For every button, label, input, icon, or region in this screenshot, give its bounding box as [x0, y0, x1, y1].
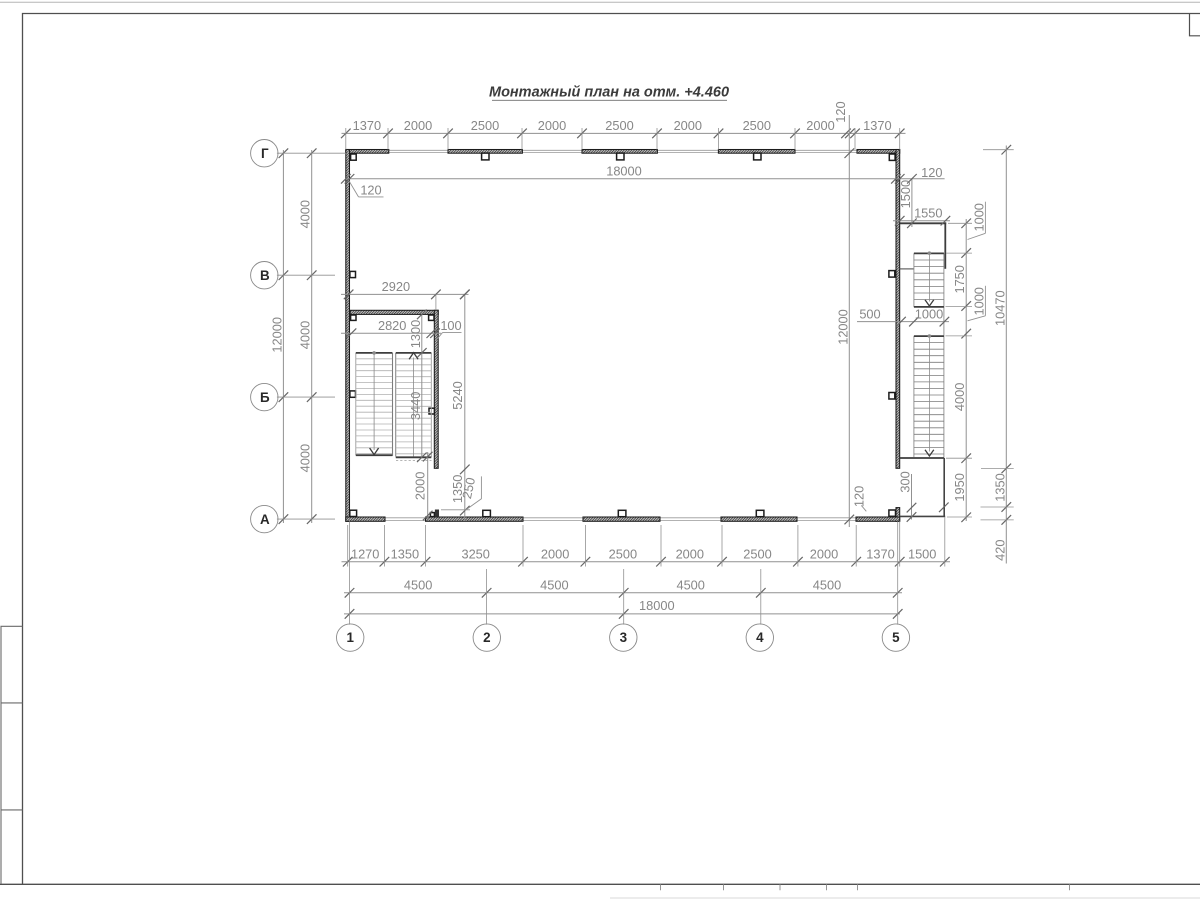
svg-text:1500: 1500 — [908, 547, 936, 562]
svg-text:5: 5 — [892, 630, 900, 645]
svg-text:2000: 2000 — [538, 118, 566, 133]
svg-text:2920: 2920 — [382, 279, 410, 294]
svg-text:2500: 2500 — [743, 118, 771, 133]
svg-text:2: 2 — [483, 630, 490, 645]
svg-text:2000: 2000 — [674, 118, 702, 133]
svg-text:1550: 1550 — [914, 206, 942, 221]
svg-text:1000: 1000 — [971, 203, 986, 231]
svg-text:2500: 2500 — [609, 547, 637, 562]
svg-text:2820: 2820 — [378, 318, 406, 333]
svg-text:120: 120 — [833, 101, 848, 122]
svg-text:3250: 3250 — [461, 547, 489, 562]
svg-text:1: 1 — [346, 630, 354, 645]
svg-text:2000: 2000 — [806, 118, 834, 133]
svg-text:1300: 1300 — [408, 320, 423, 348]
svg-text:4000: 4000 — [298, 321, 313, 349]
svg-text:2000: 2000 — [676, 547, 704, 562]
svg-text:1350: 1350 — [992, 473, 1007, 501]
svg-text:4500: 4500 — [813, 578, 841, 593]
svg-text:1370: 1370 — [863, 118, 891, 133]
svg-text:100: 100 — [440, 318, 461, 333]
svg-text:В: В — [260, 268, 270, 283]
svg-text:120: 120 — [852, 486, 867, 507]
svg-text:1950: 1950 — [952, 473, 967, 501]
svg-text:500: 500 — [859, 306, 880, 321]
svg-text:4: 4 — [756, 630, 764, 645]
svg-text:1500: 1500 — [898, 180, 913, 208]
svg-text:12000: 12000 — [269, 317, 284, 353]
svg-text:Г: Г — [261, 146, 269, 161]
svg-text:4500: 4500 — [676, 578, 704, 593]
svg-text:4000: 4000 — [298, 200, 313, 228]
svg-text:4500: 4500 — [540, 578, 568, 593]
svg-text:300: 300 — [898, 471, 913, 492]
svg-text:2000: 2000 — [541, 547, 569, 562]
svg-text:18000: 18000 — [639, 598, 675, 613]
svg-text:120: 120 — [360, 182, 381, 197]
svg-text:4000: 4000 — [952, 383, 967, 411]
svg-text:420: 420 — [992, 540, 1007, 561]
svg-text:1000: 1000 — [971, 287, 986, 315]
svg-text:1370: 1370 — [866, 547, 894, 562]
svg-text:10470: 10470 — [992, 290, 1007, 326]
svg-text:3: 3 — [620, 630, 627, 645]
svg-text:2500: 2500 — [471, 118, 499, 133]
svg-text:1350: 1350 — [391, 547, 419, 562]
svg-text:1000: 1000 — [915, 306, 943, 321]
svg-text:Монтажный план на отм. +4.460: Монтажный план на отм. +4.460 — [489, 85, 729, 101]
svg-text:3440: 3440 — [408, 392, 423, 420]
svg-text:1270: 1270 — [351, 547, 379, 562]
svg-text:2000: 2000 — [810, 547, 838, 562]
svg-text:18000: 18000 — [606, 164, 642, 179]
svg-text:5240: 5240 — [450, 381, 465, 409]
svg-text:1370: 1370 — [353, 118, 381, 133]
svg-text:4500: 4500 — [404, 578, 432, 593]
svg-text:120: 120 — [921, 165, 942, 180]
svg-text:4000: 4000 — [298, 444, 313, 472]
svg-text:2000: 2000 — [404, 118, 432, 133]
svg-text:А: А — [260, 512, 270, 527]
svg-text:12000: 12000 — [835, 309, 850, 345]
svg-text:2000: 2000 — [413, 472, 428, 500]
svg-text:Б: Б — [260, 390, 270, 405]
svg-text:2500: 2500 — [743, 547, 771, 562]
svg-text:2500: 2500 — [605, 118, 633, 133]
svg-text:1750: 1750 — [952, 265, 967, 293]
